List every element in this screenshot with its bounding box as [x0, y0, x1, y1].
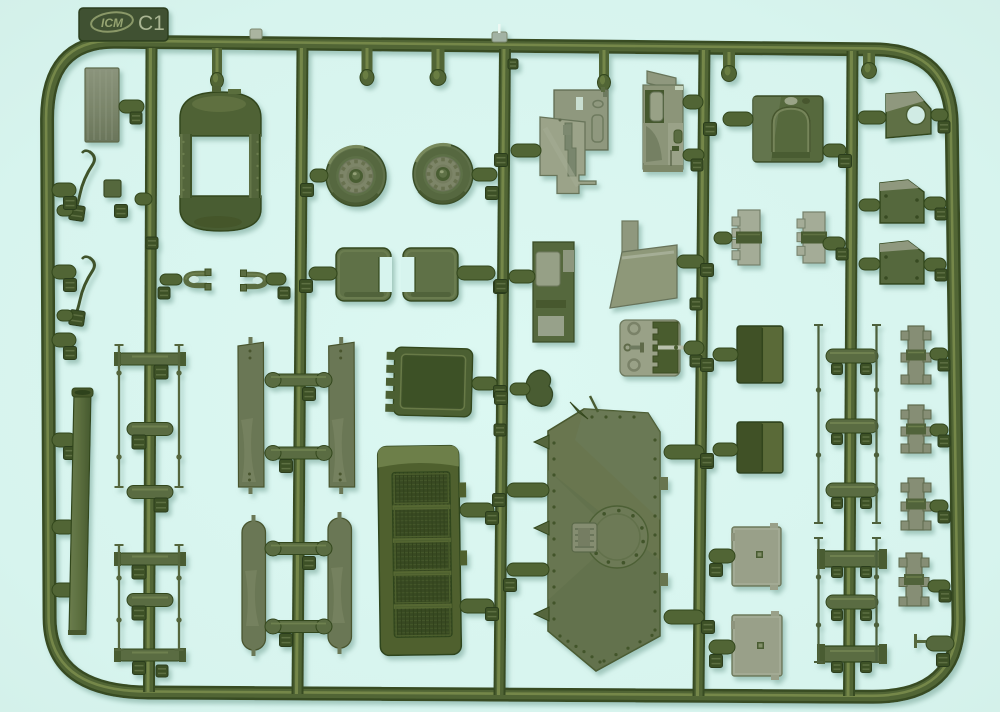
svg-text:C1: C1 — [138, 12, 165, 35]
svg-text:ICM: ICM — [101, 16, 124, 30]
